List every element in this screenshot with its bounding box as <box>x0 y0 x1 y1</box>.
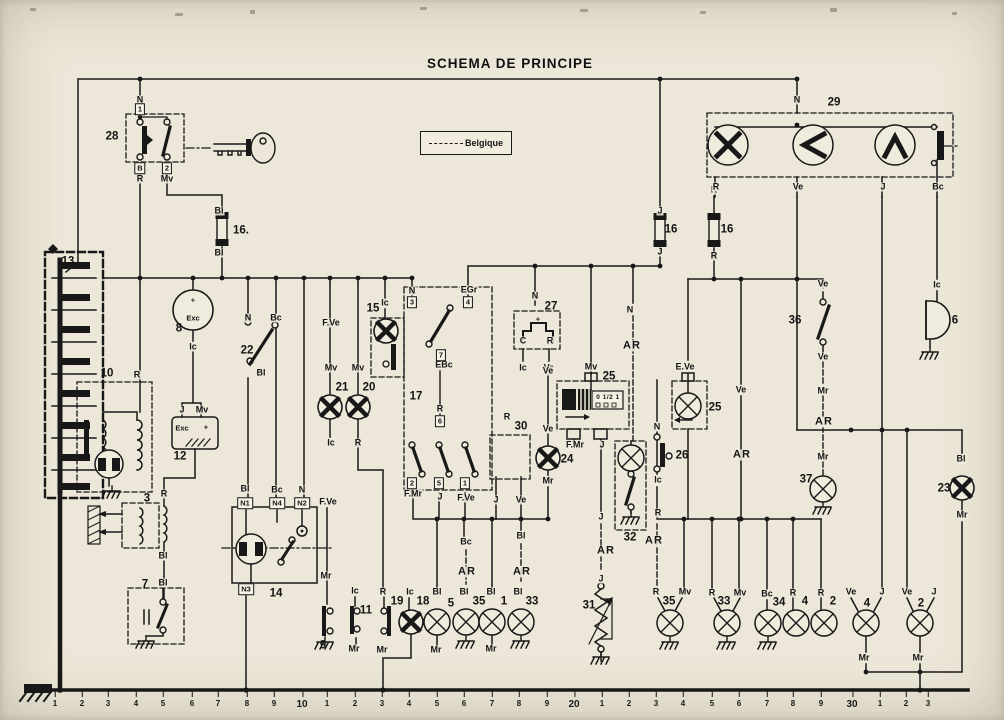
flasher-15 <box>383 344 396 370</box>
generator-8 <box>173 290 213 330</box>
switch-19 <box>381 606 391 636</box>
fuse-16-left <box>216 212 229 246</box>
switch-22 <box>245 319 278 364</box>
key-icon <box>214 133 275 163</box>
sender-31 <box>589 583 613 652</box>
lighting-switch-17 <box>409 305 478 477</box>
wiring-diagram <box>0 0 1004 720</box>
regulator-12-hatch <box>186 439 210 446</box>
wires <box>66 79 962 690</box>
battery-13 <box>48 244 96 690</box>
fuse-16-center <box>654 213 667 247</box>
lamp-unit-32 <box>626 471 634 510</box>
fuse-16-right <box>708 213 721 247</box>
horn-6 <box>926 301 950 339</box>
heater-switch-25 <box>562 389 591 420</box>
breaker-7 <box>158 599 167 633</box>
ignition-switch-28 <box>137 119 170 160</box>
page-title: SCHEMA DE PRINCIPE <box>340 56 680 71</box>
switch-9 <box>322 606 333 636</box>
ground-bus <box>20 684 968 701</box>
battery-box <box>45 252 103 498</box>
relay-27 <box>523 323 553 343</box>
schematic-page: SCHEMA DE PRINCIPE Belgique 2816.1382210… <box>0 0 1004 720</box>
legend-box: Belgique <box>420 131 512 155</box>
legend-dash-sample <box>429 143 463 144</box>
headlamp-switch-29 <box>708 125 944 166</box>
legend-label: Belgique <box>465 138 503 148</box>
switch-11 <box>350 606 360 634</box>
axis-lines <box>186 146 957 548</box>
belgique-dashed-wires <box>466 316 823 588</box>
switch-36 <box>818 299 829 345</box>
